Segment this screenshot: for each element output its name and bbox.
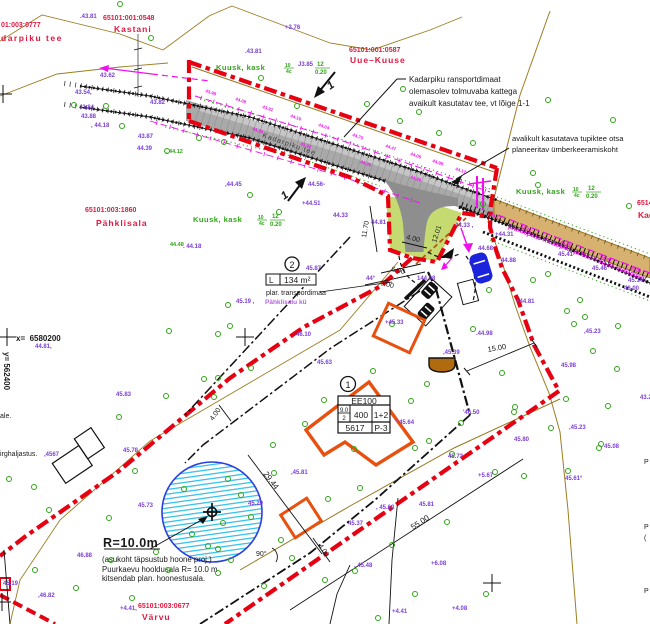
svg-text:45.19 ,: 45.19 , xyxy=(236,299,255,305)
svg-text:6514: 6514 xyxy=(637,200,650,207)
svg-text:kitsendab plan. hoonestusala.: kitsendab plan. hoonestusala. xyxy=(102,574,205,583)
svg-text:Värvu: Värvu xyxy=(142,612,171,622)
svg-text:Kad: Kad xyxy=(638,210,650,220)
svg-text:irghaljastus.: irghaljastus. xyxy=(0,451,37,458)
svg-text:plar. transpordimaa: plar. transpordimaa xyxy=(266,290,326,297)
svg-text:avalikult kasutatava tupiktee: avalikult kasutatava tupiktee otsa xyxy=(512,134,624,143)
svg-text:,44.45: ,44.45 xyxy=(225,182,242,188)
svg-text:4c: 4c xyxy=(259,221,265,227)
svg-text:43.87: 43.87 xyxy=(138,134,154,140)
svg-text:R=10.0m: R=10.0m xyxy=(103,536,158,550)
svg-text:.44.98: .44.98 xyxy=(476,331,493,337)
svg-text:44.68: 44.68 xyxy=(478,246,494,252)
svg-text:, 44.12: , 44.12 xyxy=(166,149,183,155)
svg-text:45.19: 45.19 xyxy=(3,581,19,587)
svg-text:5617: 5617 xyxy=(346,423,365,433)
svg-text:+4.08: +4.08 xyxy=(452,606,468,612)
svg-text:44.33 ,: 44.33 , xyxy=(455,223,474,229)
svg-text:'46.50: '46.50 xyxy=(463,410,480,416)
svg-text:,46.82: ,46.82 xyxy=(38,593,55,599)
svg-text:,45.23: ,45.23 xyxy=(569,425,586,431)
svg-text:45.98: 45.98 xyxy=(561,363,577,369)
svg-text:44.81,: 44.81, xyxy=(35,344,52,350)
svg-text:0.20: 0.20 xyxy=(315,70,327,76)
svg-text:ale.: ale. xyxy=(0,413,11,420)
svg-text:Pähklisala: Pähklisala xyxy=(96,218,148,228)
svg-text:+44.31: +44.31 xyxy=(495,232,514,238)
svg-text:65101:001:0587: 65101:001:0587 xyxy=(349,47,400,54)
svg-text:, 45.60: , 45.60 xyxy=(376,505,395,511)
svg-text:45.83: 45.83 xyxy=(116,392,132,398)
svg-text:44.81: 44.81 xyxy=(371,220,387,226)
svg-text:1: 1 xyxy=(345,380,350,390)
svg-text:(asukoht täpsustub hoone proj.: (asukoht täpsustub hoone proj.) xyxy=(102,555,212,564)
svg-text:44.33: 44.33 xyxy=(333,213,349,219)
svg-text:12: 12 xyxy=(317,62,324,68)
svg-text:44.48: 44.48 xyxy=(170,242,184,248)
svg-text:Puurkaevu hooldusala R= 10.0 m: Puurkaevu hooldusala R= 10.0 m xyxy=(102,565,218,574)
svg-text:P: P xyxy=(644,588,649,595)
svg-text:+44.81: +44.81 xyxy=(516,299,535,305)
svg-text:,45.81: ,45.81 xyxy=(291,470,308,476)
svg-text:Pähklisalu kü: Pähklisalu kü xyxy=(265,299,307,306)
svg-text:43.84: 43.84 xyxy=(79,105,95,111)
svg-text:65101:003:0677: 65101:003:0677 xyxy=(138,603,189,610)
svg-text:.43.81: .43.81 xyxy=(80,14,97,20)
svg-text:44.88: 44.88 xyxy=(501,258,517,264)
svg-text:45.81: 45.81 xyxy=(419,502,435,508)
svg-text:+45.33: +45.33 xyxy=(385,320,404,326)
svg-text:45.87: 45.87 xyxy=(306,266,322,272)
svg-text:65101:003:1860: 65101:003:1860 xyxy=(85,207,136,214)
svg-text:,4567: ,4567 xyxy=(44,452,60,458)
svg-text:Kastani: Kastani xyxy=(114,24,152,34)
svg-text:y= 562400: y= 562400 xyxy=(2,352,11,391)
svg-text:45.73: 45.73 xyxy=(138,503,154,509)
svg-text:0.20: 0.20 xyxy=(586,194,598,200)
svg-text:+3.76: +3.76 xyxy=(285,25,301,31)
svg-text:400: 400 xyxy=(354,410,368,420)
svg-text:,45.23: ,45.23 xyxy=(584,329,601,335)
svg-text:45.72: 45.72 xyxy=(448,454,464,460)
svg-text:46.10: 46.10 xyxy=(296,332,312,338)
svg-text:avaikult kasutatav tee, vt lõi: avaikult kasutatav tee, vt lõige 1-1 xyxy=(409,99,530,108)
svg-text:43.88: 43.88 xyxy=(81,114,97,120)
svg-text:planeeritav ümberkeeramiskoht: planeeritav ümberkeeramiskoht xyxy=(512,145,619,154)
svg-text:P: P xyxy=(644,524,649,531)
svg-text:43.82: 43.82 xyxy=(150,100,166,106)
svg-text:' 45.64: ' 45.64 xyxy=(396,420,415,426)
svg-text:+5.67: +5.67 xyxy=(478,473,494,479)
svg-text:,45.39: ,45.39 xyxy=(443,350,460,356)
svg-text:+4.41: +4.41 xyxy=(392,609,408,615)
svg-text:45.37: 45.37 xyxy=(348,521,364,527)
svg-text:x= 6580200: x= 6580200 xyxy=(16,334,61,343)
svg-text:01:003:0777: 01:003:0777 xyxy=(1,22,41,29)
svg-text:. 44.18: . 44.18 xyxy=(183,244,202,250)
svg-text:+4.41,: +4.41, xyxy=(120,606,137,612)
svg-text:45.14: 45.14 xyxy=(628,278,644,284)
svg-text:Kuusk, kask: Kuusk, kask xyxy=(216,63,266,72)
svg-text:65101:001:0548: 65101:001:0548 xyxy=(103,15,154,22)
svg-text:43.54,: 43.54, xyxy=(75,90,92,96)
svg-text:Kuusk, kask: Kuusk, kask xyxy=(516,187,566,196)
svg-text:P-3: P-3 xyxy=(374,423,388,433)
svg-text:P: P xyxy=(644,459,649,466)
svg-text:45.80: 45.80 xyxy=(514,437,530,443)
svg-text:Kuusk, kask: Kuusk, kask xyxy=(193,215,243,224)
svg-text:45.63: 45.63 xyxy=(317,360,333,366)
svg-text:44.56-: 44.56- xyxy=(308,182,325,188)
svg-text:44°: 44° xyxy=(366,276,376,282)
svg-text:12: 12 xyxy=(588,186,595,192)
svg-text:, 44.18: , 44.18 xyxy=(91,123,110,129)
svg-text:45.41: 45.41 xyxy=(558,252,574,258)
svg-text:45.29: 45.29 xyxy=(248,501,264,507)
svg-text:46.00: 46.00 xyxy=(624,286,640,292)
svg-text:olemasolev tolmuvaba kattega: olemasolev tolmuvaba kattega xyxy=(409,87,518,96)
svg-text:44.39: 44.39 xyxy=(137,146,153,152)
svg-text:+44.51: +44.51 xyxy=(302,201,321,207)
svg-text:, 45.48: , 45.48 xyxy=(354,563,373,569)
svg-text:46.88: 46.88 xyxy=(77,553,93,559)
svg-text:0.20: 0.20 xyxy=(270,222,282,228)
svg-text:Kadarpiku ransportdimaat: Kadarpiku ransportdimaat xyxy=(409,75,501,84)
svg-text:Uue–Kuuse: Uue–Kuuse xyxy=(350,55,406,65)
svg-text:45.08: 45.08 xyxy=(604,444,620,450)
svg-text:45.46: 45.46 xyxy=(592,266,608,272)
svg-text:L: L xyxy=(269,276,274,285)
svg-text:43.2: 43.2 xyxy=(640,395,650,401)
svg-text:EE100: EE100 xyxy=(351,396,377,406)
svg-text:.43.81: .43.81 xyxy=(245,49,262,55)
svg-text:45.61°: 45.61° xyxy=(565,476,583,482)
svg-text:1+2: 1+2 xyxy=(374,410,389,420)
svg-text:+6.08: +6.08 xyxy=(431,561,447,567)
svg-text:144.98: 144.98 xyxy=(417,276,436,282)
svg-text:134 m²: 134 m² xyxy=(284,275,311,285)
svg-text:2: 2 xyxy=(289,260,294,270)
svg-text:darpiku tee: darpiku tee xyxy=(1,33,63,43)
svg-text:J3.85: J3.85 xyxy=(298,62,314,68)
svg-text:90°: 90° xyxy=(256,550,267,558)
svg-text:4c: 4c xyxy=(286,69,292,75)
svg-text:4c: 4c xyxy=(574,193,580,199)
svg-text:43.62: 43.62 xyxy=(100,73,116,79)
svg-text:45.78: 45.78 xyxy=(123,448,139,454)
svg-text:9.0: 9.0 xyxy=(340,408,349,414)
